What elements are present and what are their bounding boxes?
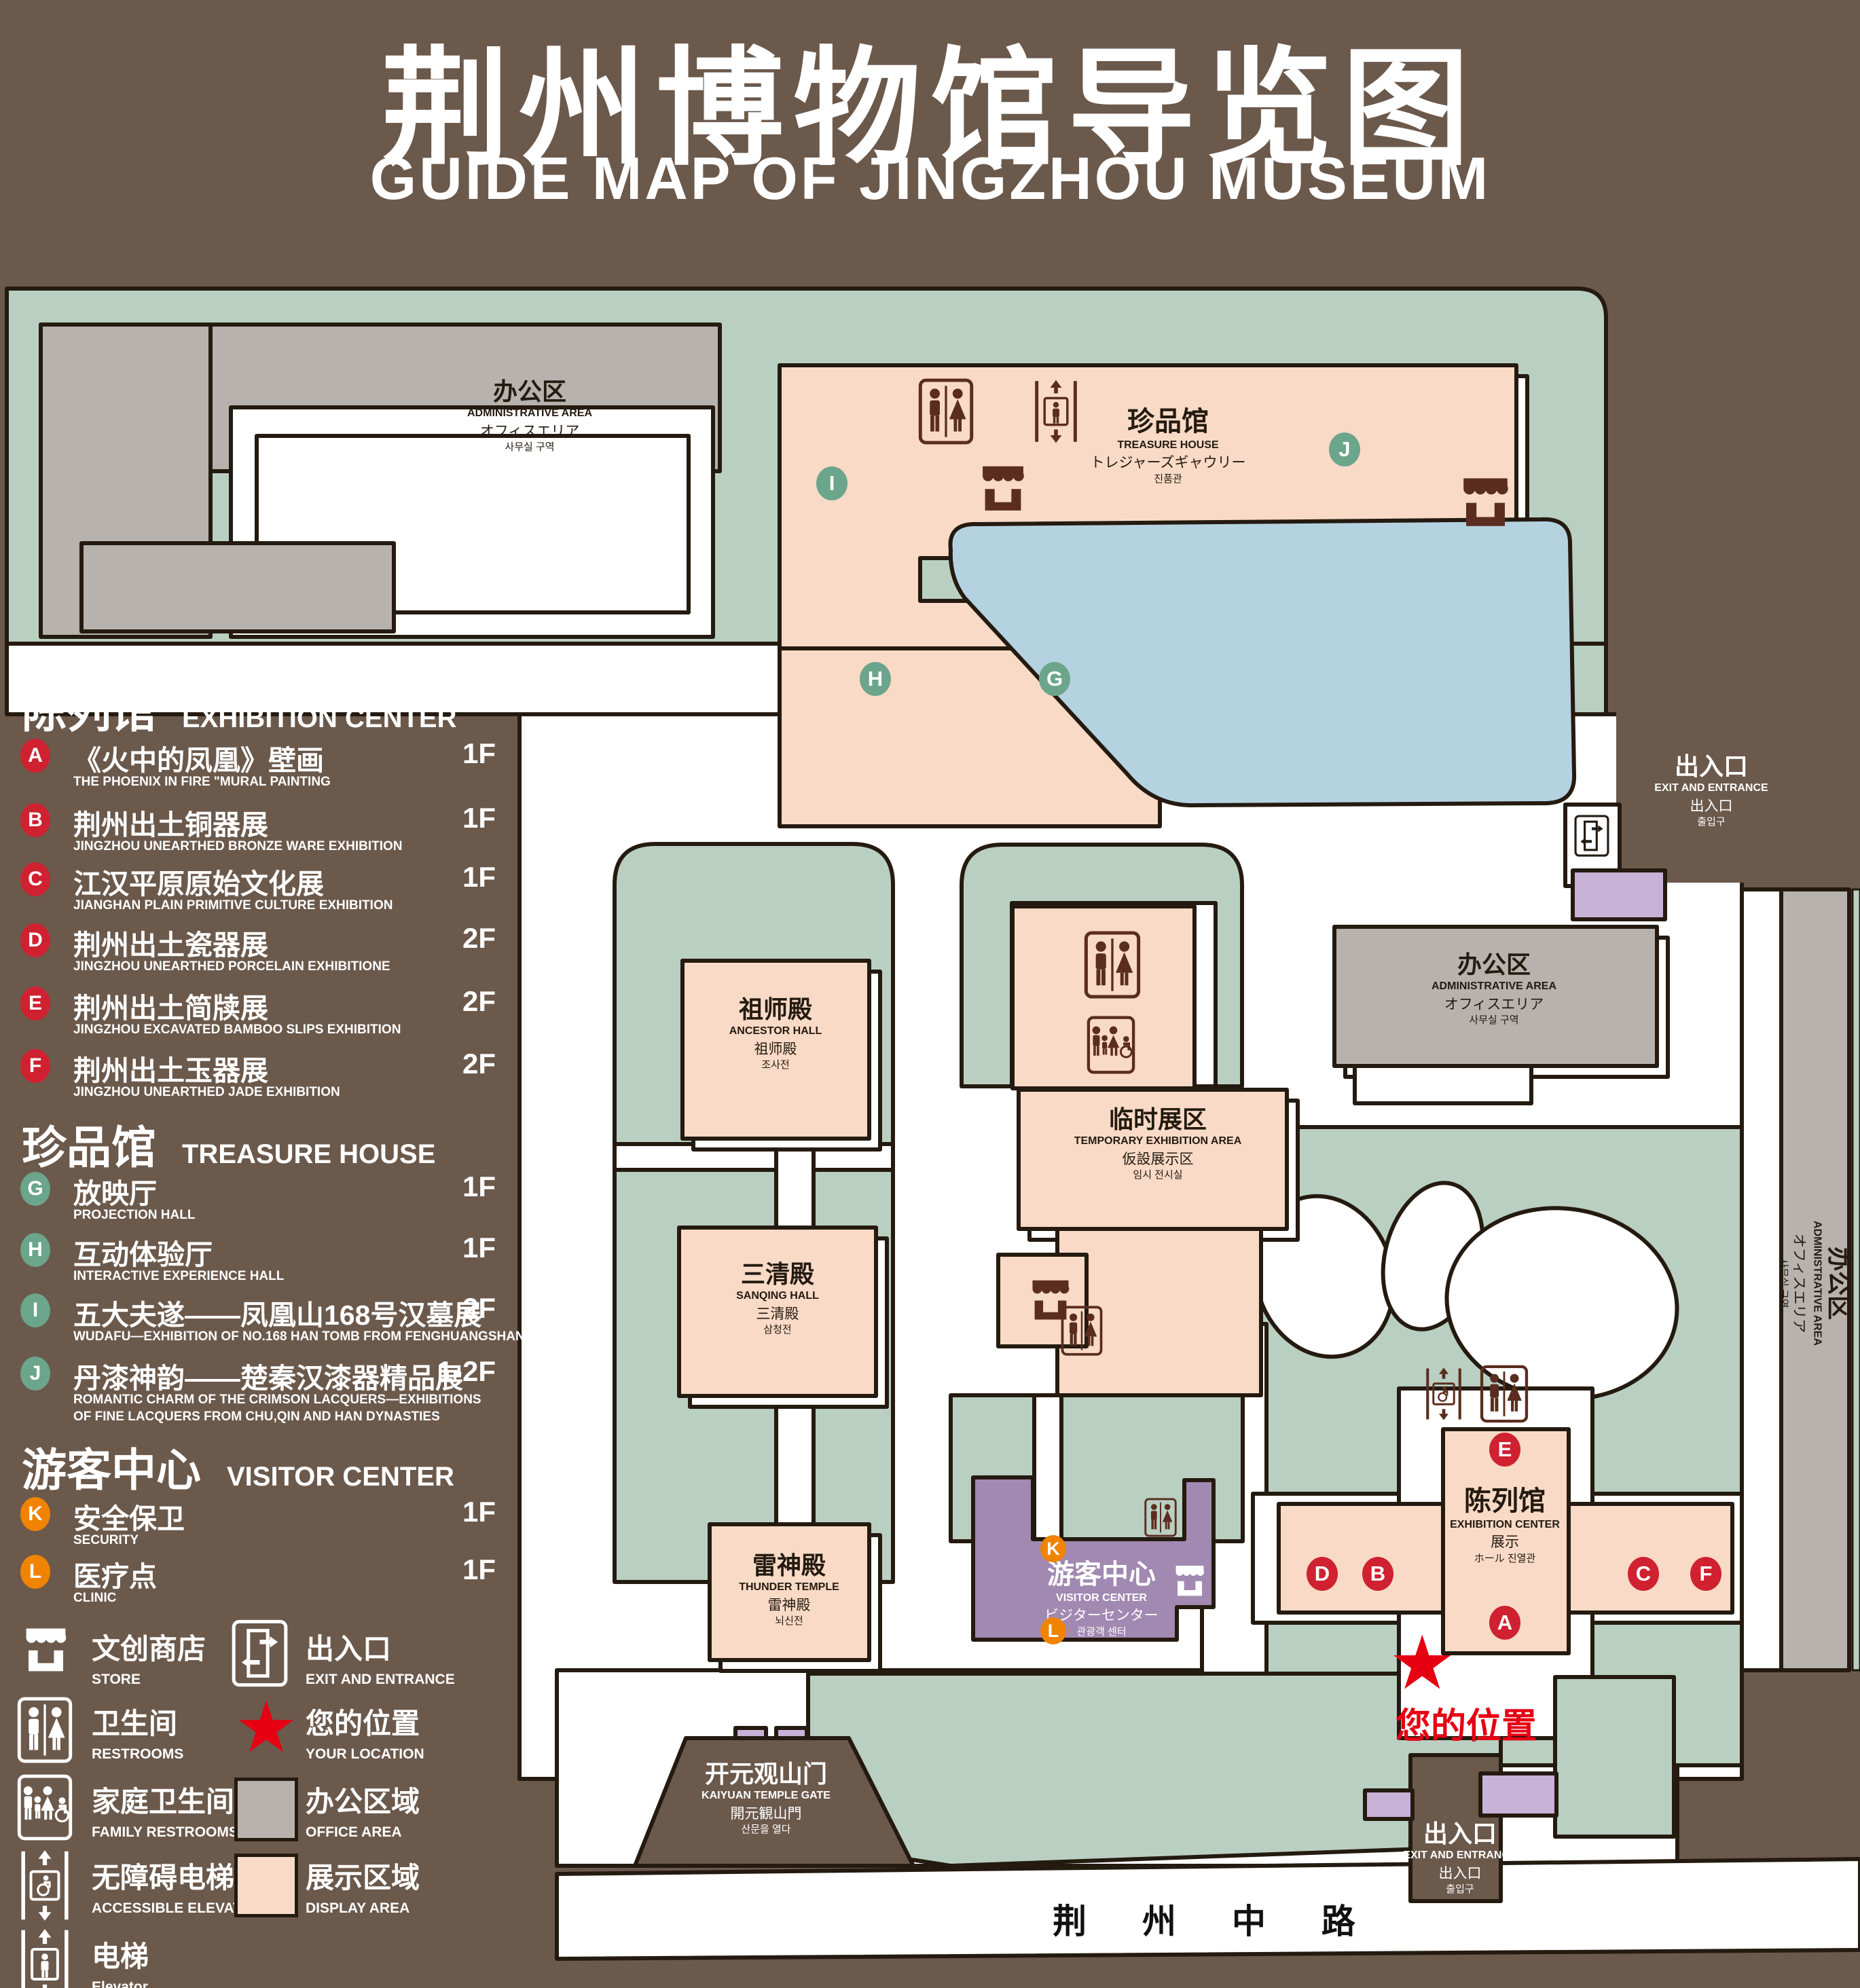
marker-F[interactable]: F [1690, 1557, 1721, 1591]
legend-store: 文创商店STORE [92, 1626, 206, 1688]
accessible-elevator-icon [1423, 1366, 1464, 1422]
label-admin-top: 办公区ADMINISTRATIVE AREA オフィスエリア사무실 구역 [467, 378, 592, 453]
legend-family-restrooms: 家庭卫生间FAMILY RESTROOMS [92, 1779, 238, 1841]
ne-exit-block [1573, 870, 1665, 919]
family-restrooms-icon [17, 1773, 73, 1841]
office-area-chip [234, 1778, 298, 1841]
legend-item-C[interactable]: C 江汉平原原始文化展 JIANGHAN PLAIN PRIMITIVE CUL… [20, 864, 482, 926]
section-visitor-center: 游客中心VISITOR CENTER [22, 1434, 454, 1499]
label-admin-right: 办公区ADMINISTRATIVE AREA オフィスエリア사무실 구역 [1777, 1221, 1853, 1346]
exit-entrance-icon [1574, 813, 1609, 858]
legend-item-F[interactable]: F 荆州出土玉器展 JINGZHOU UNEARTHED JADE EXHIBI… [20, 1050, 482, 1113]
marker-J[interactable]: J [1329, 432, 1360, 466]
section-treasure-house: 珍品馆TREASURE HOUSE [22, 1111, 435, 1177]
legend-item-I[interactable]: I 五大夫遂——凤凰山168号汉墓展 WUDAFU—EXHIBITION OF … [20, 1295, 482, 1357]
legend-exit: 出入口EXIT AND ENTRANCE [306, 1626, 455, 1688]
marker-D[interactable]: D [1307, 1557, 1338, 1591]
section-exhibition-center: 陈列馆EXHIBITION CENTER [22, 676, 456, 741]
elevator-icon [1032, 375, 1080, 448]
elevator-icon [17, 1927, 73, 1988]
your-location-label: 您的位置 [1396, 1697, 1537, 1748]
restrooms-icon [918, 375, 974, 448]
restrooms-icon [1478, 1365, 1531, 1423]
marker-G[interactable]: G [1039, 662, 1070, 696]
store-icon [17, 1623, 75, 1680]
label-treasure-house: 珍品馆TREASURE HOUSE トレジャーズギャウリー진품관 [1091, 406, 1246, 485]
store-icon [1169, 1562, 1210, 1602]
legend-item-K[interactable]: K 安全保卫 SECURITY 1F [20, 1498, 482, 1561]
accessible-elevator-icon [17, 1848, 73, 1923]
legend-item-H[interactable]: H 互动体验厅 INTERACTIVE EXPERIENCE HALL 1F [20, 1234, 482, 1297]
legend-restrooms: 卫生间RESTROOMS [92, 1701, 183, 1763]
exit-entrance-icon [231, 1619, 289, 1687]
legend-display-area: 展示区域DISPLAY AREA [306, 1855, 420, 1917]
store-icon [973, 460, 1033, 520]
west-courtyard [615, 844, 893, 1582]
marker-K[interactable]: K [1040, 1535, 1066, 1562]
legend-item-A[interactable]: A 《火中的凤凰》壁画 THE PHOENIX IN FIRE "MURAL P… [20, 740, 482, 803]
legend-item-E[interactable]: E 荆州出土简牍展 JINGZHOU EXCAVATED BAMBOO SLIP… [20, 988, 482, 1050]
marker-C[interactable]: C [1628, 1557, 1659, 1591]
label-admin-mid: 办公区ADMINISTRATIVE AREA オフィスエリア사무실 구역 [1432, 951, 1556, 1026]
marker-E[interactable]: E [1489, 1433, 1520, 1467]
legend-item-L[interactable]: L 医疗点 CLINIC 1F [20, 1556, 482, 1619]
restrooms-icon [17, 1696, 73, 1764]
legend-elevator: 电梯Elevator [92, 1934, 149, 1988]
restrooms-icon [1061, 1300, 1103, 1361]
restrooms-icon [1144, 1498, 1178, 1537]
store-icon [1453, 472, 1518, 536]
label-exit-south: 出入口EXIT AND ENTRANCE 出入口출입구 [1403, 1820, 1516, 1895]
page-subtitle: GUIDE MAP OF JINGZHOU MUSEUM [370, 144, 1491, 213]
family-restrooms-icon [1087, 1015, 1135, 1075]
road-label: 荆 州 中 路 [1053, 1894, 1379, 1943]
marker-I[interactable]: I [816, 466, 847, 500]
label-exhibition-center: 陈列馆EXHIBITION CENTER 展示ホール 진열관 [1450, 1486, 1560, 1564]
legend-your-location: 您的位置YOUR LOCATION [306, 1701, 424, 1763]
legend-item-G[interactable]: G 放映厅 PROJECTION HALL 1F [20, 1173, 482, 1236]
label-sanqing-hall: 三清殿SANQING HALL 三清殿삼청전 [736, 1260, 819, 1336]
display-area-chip [234, 1854, 298, 1917]
guide-map-poster: 荆州博物馆导览图 GUIDE MAP OF JINGZHOU MUSEUM 办公… [0, 0, 1860, 1988]
location-star-icon: ★ [234, 1692, 298, 1763]
legend-item-B[interactable]: B 荆州出土铜器展 JINGZHOU UNEARTHED BRONZE WARE… [20, 805, 482, 867]
marker-B[interactable]: B [1362, 1557, 1393, 1591]
label-thunder-temple: 雷神殿THUNDER TEMPLE 雷神殿뇌신전 [739, 1551, 839, 1627]
label-temporary-area: 临时展区TEMPORARY EXHIBITION AREA 仮設展示区임시 전시… [1074, 1105, 1242, 1181]
marker-L[interactable]: L [1040, 1617, 1066, 1644]
location-star-icon: ★ [1389, 1626, 1456, 1701]
restrooms-icon [1084, 924, 1141, 1006]
legend-office-area: 办公区域OFFICE AREA [306, 1779, 420, 1841]
marker-H[interactable]: H [860, 662, 891, 696]
legend-item-D[interactable]: D 荆州出土瓷器展 JINGZHOU UNEARTHED PORCELAIN E… [20, 925, 482, 987]
marker-A[interactable]: A [1489, 1606, 1520, 1640]
label-exit-ne: 出入口EXIT AND ENTRANCE 出入口출입구 [1654, 752, 1768, 828]
legend-item-J[interactable]: J 丹漆神韵——楚秦汉漆器精品展 ROMANTIC CHARM OF THE C… [20, 1358, 482, 1420]
label-gate: 开元观山门KAIYUAN TEMPLE GATE 開元観山門산문을 열다 [701, 1760, 831, 1835]
label-ancestor-hall: 祖师殿ANCESTOR HALL 祖师殿조사전 [729, 995, 822, 1071]
